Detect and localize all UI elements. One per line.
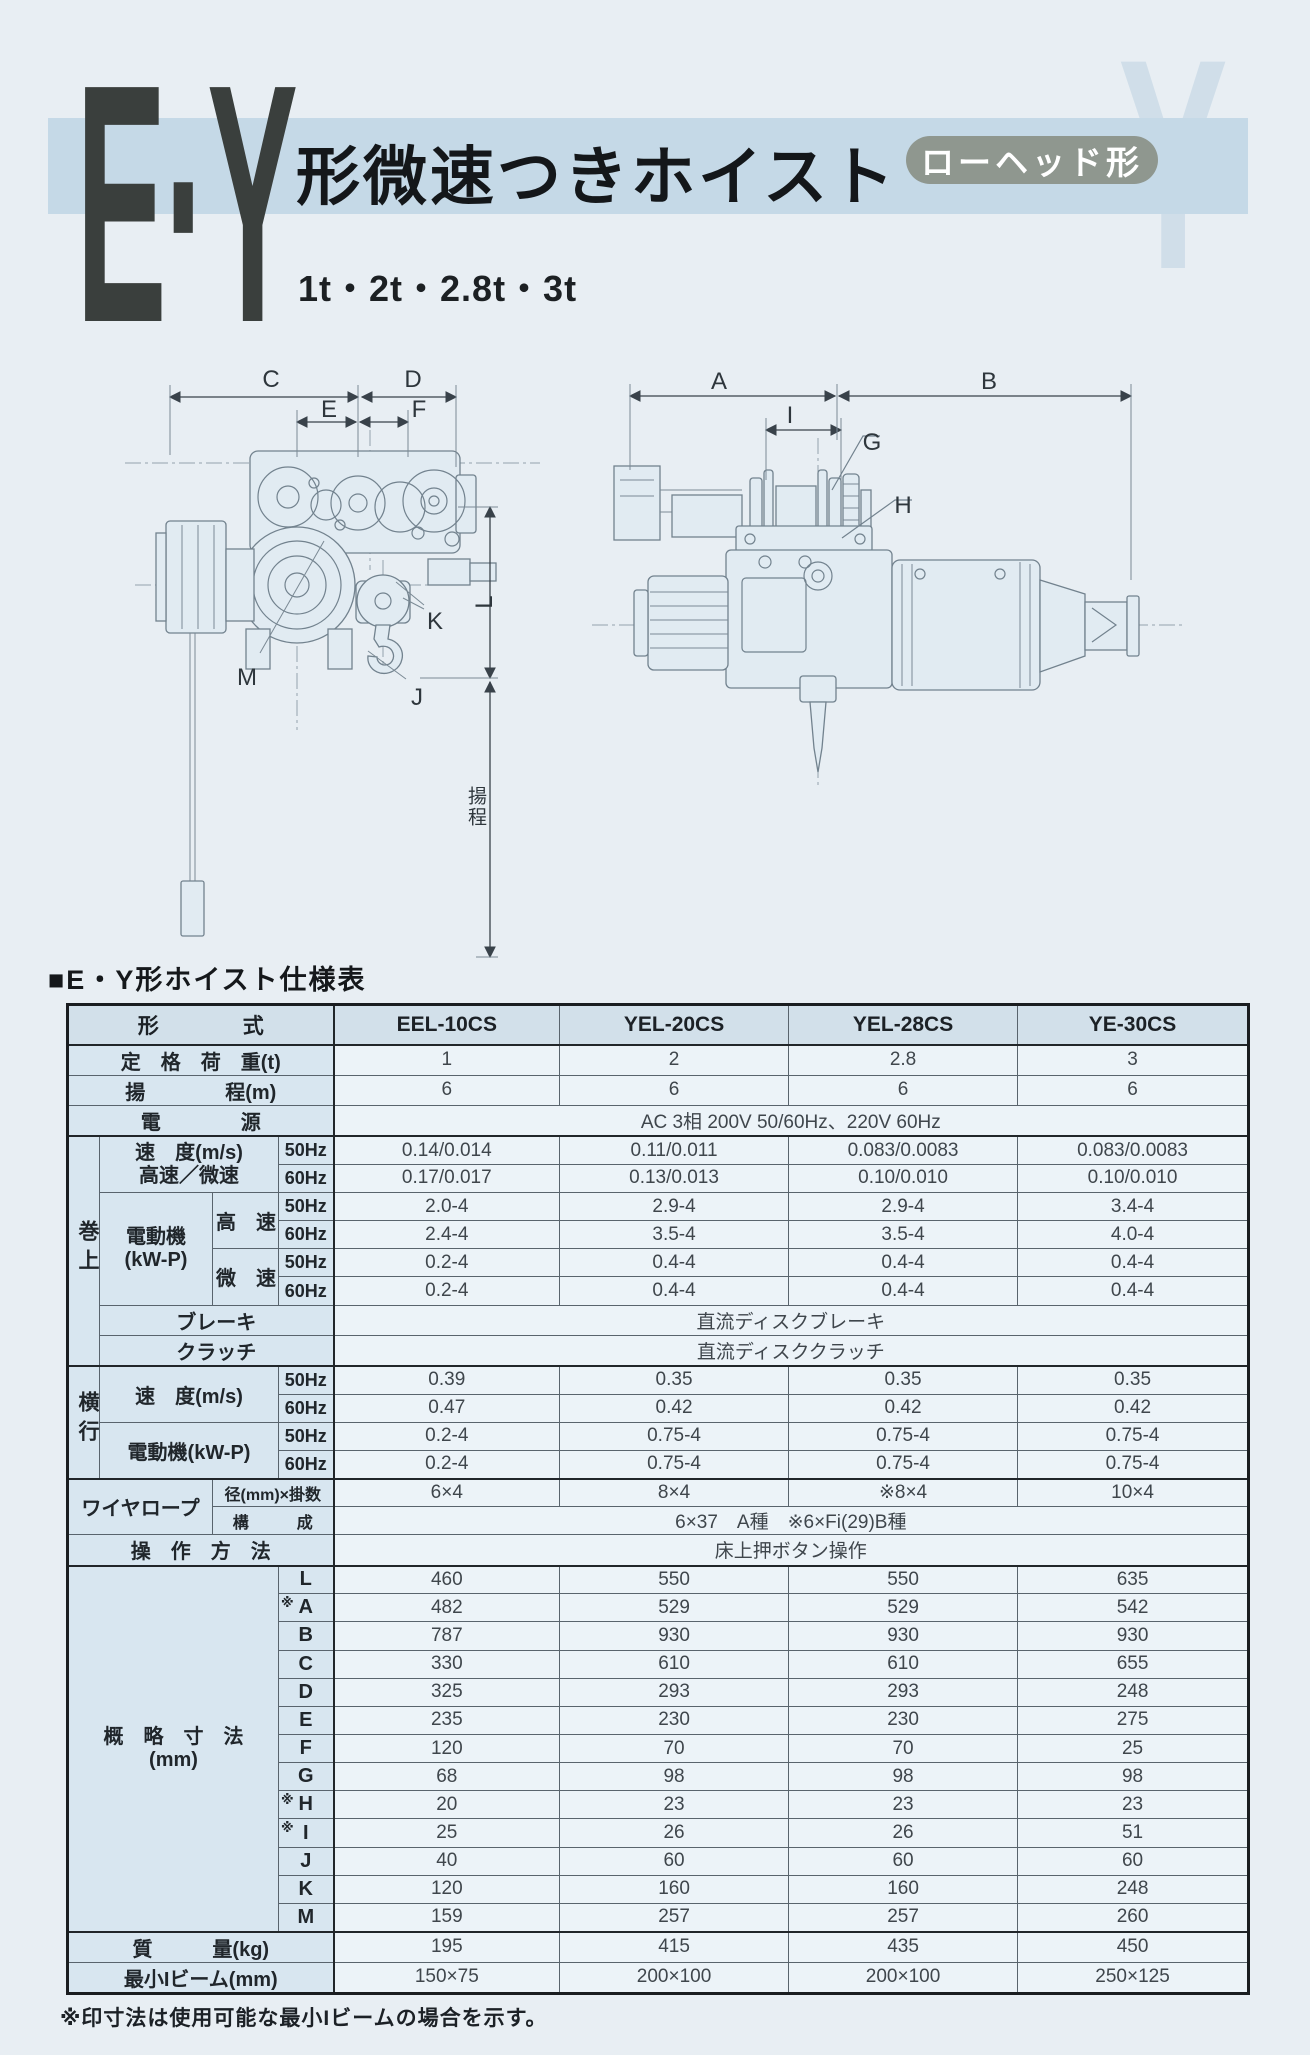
table-row: ブレーキ 直流ディスクブレーキ <box>68 1305 1249 1335</box>
hoist-motor-label: 電動機 (kW-P) <box>100 1193 213 1306</box>
hoist-side-view-drawing <box>100 335 560 970</box>
spec-value: 6 <box>334 1075 560 1105</box>
spec-value: 325 <box>334 1678 560 1706</box>
table-row: 質 量(kg) 195 415 435 450 <box>68 1932 1249 1963</box>
spec-value: 230 <box>560 1706 789 1734</box>
lift-height-label: 揚程 <box>462 786 489 828</box>
spec-value: 0.47 <box>334 1394 560 1422</box>
table-row: 横行 速 度(m/s) 50Hz 0.39 0.35 0.35 0.35 <box>68 1366 1249 1394</box>
dim-label-c: C <box>256 366 286 394</box>
table-row: 揚 程(m) 6 6 6 6 <box>68 1075 1249 1105</box>
spec-value: 120 <box>334 1734 560 1762</box>
spec-value: 2.9-4 <box>789 1193 1018 1221</box>
catalog-page: Y E·Y 形微速つきホイスト ローヘッド形 1t・2t・2.8t・3t <box>0 0 1310 2055</box>
spec-value: 930 <box>560 1622 789 1650</box>
spec-value: 0.4-4 <box>560 1277 789 1305</box>
spec-value: 195 <box>334 1932 560 1963</box>
spec-value: 0.75-4 <box>560 1450 789 1478</box>
spec-value: 2 <box>560 1045 789 1076</box>
table-row: 電動機 (kW-P) 高 速 50Hz 2.0-4 2.9-4 2.9-4 3.… <box>68 1193 1249 1221</box>
spec-value: 0.17/0.017 <box>334 1164 560 1192</box>
spec-value: 529 <box>560 1594 789 1622</box>
spec-value: 275 <box>1018 1706 1249 1734</box>
spec-value: 70 <box>560 1734 789 1762</box>
spec-value: 2.4-4 <box>334 1221 560 1249</box>
spec-value: 8×4 <box>560 1479 789 1507</box>
spec-value: 257 <box>560 1903 789 1931</box>
spec-value: 26 <box>789 1819 1018 1847</box>
table-row: 形 式 EEL-10CS YEL-20CS YEL-28CS YE-30CS <box>68 1005 1249 1045</box>
spec-value: 930 <box>1018 1622 1249 1650</box>
spec-value: 23 <box>560 1791 789 1819</box>
spec-value: 60 <box>789 1847 1018 1875</box>
spec-value: 610 <box>789 1650 1018 1678</box>
spec-value: 3.5-4 <box>789 1221 1018 1249</box>
spec-value: 0.42 <box>789 1394 1018 1422</box>
dim-label-d: D <box>398 366 428 394</box>
spec-value: 550 <box>789 1566 1018 1594</box>
dim-row-letter: F <box>279 1734 334 1762</box>
table-row: 操 作 方 法 床上押ボタン操作 <box>68 1535 1249 1566</box>
spec-value: 60 <box>560 1847 789 1875</box>
spec-value: 70 <box>789 1734 1018 1762</box>
spec-value: 0.75-4 <box>789 1422 1018 1450</box>
spec-value: 0.4-4 <box>1018 1249 1249 1277</box>
lift-label: 揚 程(m) <box>68 1075 334 1105</box>
spec-value: 0.35 <box>1018 1366 1249 1394</box>
spec-value: 3.4-4 <box>1018 1193 1249 1221</box>
table-row: ワイヤロープ 径(mm)×掛数 6×4 8×4 ※8×4 10×4 <box>68 1479 1249 1507</box>
mass-label: 質 量(kg) <box>68 1932 334 1963</box>
spec-value: 20 <box>334 1791 560 1819</box>
hz-label: 60Hz <box>279 1394 334 1422</box>
spec-value: 0.083/0.0083 <box>1018 1136 1249 1164</box>
spec-value: 235 <box>334 1706 560 1734</box>
spec-value: 2.8 <box>789 1045 1018 1076</box>
dim-label-f: F <box>404 396 434 424</box>
spec-value: 6×4 <box>334 1479 560 1507</box>
model-name: YEL-28CS <box>789 1005 1018 1045</box>
brake-label: ブレーキ <box>100 1305 334 1335</box>
spec-value: 25 <box>334 1819 560 1847</box>
spec-value: 159 <box>334 1903 560 1931</box>
min-beam-label: 最小Iビーム(mm) <box>68 1962 334 1993</box>
hoist-group-label: 巻上 <box>68 1136 100 1366</box>
fast-label: 高 速 <box>213 1193 279 1249</box>
dim-label-a: A <box>704 368 734 396</box>
spec-value: 0.42 <box>1018 1394 1249 1422</box>
spec-value: 6 <box>1018 1075 1249 1105</box>
spec-value: 6 <box>789 1075 1018 1105</box>
spec-value: 4.0-4 <box>1018 1221 1249 1249</box>
dim-row-letter: B <box>279 1622 334 1650</box>
spec-value: 200×100 <box>560 1962 789 1993</box>
spec-value: 0.4-4 <box>1018 1277 1249 1305</box>
spec-value: 0.39 <box>334 1366 560 1394</box>
spec-value: 0.2-4 <box>334 1422 560 1450</box>
hoist-speed-label: 速 度(m/s) 高速／微速 <box>100 1136 279 1192</box>
spec-value: 51 <box>1018 1819 1249 1847</box>
dim-row-letter: G <box>279 1763 334 1791</box>
spec-value: 25 <box>1018 1734 1249 1762</box>
dim-label-e: E <box>314 396 344 424</box>
lowhead-badge: ローヘッド形 <box>906 136 1158 184</box>
hoist-front-view-drawing <box>580 340 1200 800</box>
spec-value: 248 <box>1018 1875 1249 1903</box>
spec-value: 248 <box>1018 1678 1249 1706</box>
spec-value: 98 <box>1018 1763 1249 1791</box>
product-logo: E·Y <box>76 34 296 374</box>
hz-label: 50Hz <box>279 1366 334 1394</box>
spec-value: 0.14/0.014 <box>334 1136 560 1164</box>
spec-value: 529 <box>789 1594 1018 1622</box>
spec-value: 655 <box>1018 1650 1249 1678</box>
operation-label: 操 作 方 法 <box>68 1535 334 1566</box>
spec-value: 200×100 <box>789 1962 1018 1993</box>
dim-row-letter: ※H <box>279 1791 334 1819</box>
dim-row-letter: E <box>279 1706 334 1734</box>
spec-value: 250×125 <box>1018 1962 1249 1993</box>
clutch-label: クラッチ <box>100 1335 334 1366</box>
spec-value: 0.35 <box>789 1366 1018 1394</box>
spec-value: 293 <box>560 1678 789 1706</box>
table-row: 微 速 50Hz 0.2-4 0.4-4 0.4-4 0.4-4 <box>68 1249 1249 1277</box>
spec-value: 610 <box>560 1650 789 1678</box>
spec-value: 23 <box>789 1791 1018 1819</box>
traverse-group-label: 横行 <box>68 1366 100 1479</box>
table-row: 構 成 6×37 A種 ※6×Fi(29)B種 <box>68 1507 1249 1535</box>
spec-value: 2.9-4 <box>560 1193 789 1221</box>
spec-value: 787 <box>334 1622 560 1650</box>
model-name: YEL-20CS <box>560 1005 789 1045</box>
model-name: YE-30CS <box>1018 1005 1249 1045</box>
spec-value: 0.083/0.0083 <box>789 1136 1018 1164</box>
hz-label: 50Hz <box>279 1136 334 1164</box>
dim-label-m: M <box>232 664 262 692</box>
spec-table-title: ■E・Y形ホイスト仕様表 <box>48 958 367 997</box>
spec-value: 68 <box>334 1763 560 1791</box>
spec-value: 0.4-4 <box>560 1249 789 1277</box>
model-name: EEL-10CS <box>334 1005 560 1045</box>
dim-row-letter: M <box>279 1903 334 1931</box>
dim-label-k: K <box>420 608 450 636</box>
hz-label: 60Hz <box>279 1164 334 1192</box>
dim-row-letter: J <box>279 1847 334 1875</box>
spec-value: 542 <box>1018 1594 1249 1622</box>
spec-table: 形 式 EEL-10CS YEL-20CS YEL-28CS YE-30CS 定… <box>66 1003 1250 1995</box>
spec-value: 930 <box>789 1622 1018 1650</box>
dim-label-l: L <box>471 587 499 617</box>
spec-value: 98 <box>560 1763 789 1791</box>
spec-value: 40 <box>334 1847 560 1875</box>
spec-value: 160 <box>560 1875 789 1903</box>
slow-label: 微 速 <box>213 1249 279 1305</box>
dim-label-j: J <box>402 684 432 712</box>
dim-row-letter: D <box>279 1678 334 1706</box>
spec-value: 0.42 <box>560 1394 789 1422</box>
spec-value: 0.75-4 <box>1018 1450 1249 1478</box>
spec-value: 450 <box>1018 1932 1249 1963</box>
spec-value: 0.75-4 <box>789 1450 1018 1478</box>
dim-label-i: I <box>775 402 805 430</box>
hz-label: 50Hz <box>279 1422 334 1450</box>
table-row: 最小Iビーム(mm) 150×75 200×100 200×100 250×12… <box>68 1962 1249 1993</box>
spec-value: 3 <box>1018 1045 1249 1076</box>
hz-label: 60Hz <box>279 1221 334 1249</box>
dim-label-b: B <box>974 368 1004 396</box>
spec-value: 0.11/0.011 <box>560 1136 789 1164</box>
dim-row-letter: ※I <box>279 1819 334 1847</box>
spec-value: 415 <box>560 1932 789 1963</box>
spec-value: 460 <box>334 1566 560 1594</box>
dim-label-g: G <box>857 429 887 457</box>
hz-label: 50Hz <box>279 1249 334 1277</box>
dim-row-letter: ※A <box>279 1594 334 1622</box>
footnote: ※印寸法は使用可能な最小Iビームの場合を示す。 <box>60 2002 548 2032</box>
spec-value: 435 <box>789 1932 1018 1963</box>
clutch-value: 直流ディスククラッチ <box>334 1335 1249 1366</box>
dim-label-h: H <box>888 492 918 520</box>
model-header-label: 形 式 <box>68 1005 334 1045</box>
operation-value: 床上押ボタン操作 <box>334 1535 1249 1566</box>
spec-value: 98 <box>789 1763 1018 1791</box>
table-row: 概 略 寸 法 (mm) L 460 550 550 635 <box>68 1566 1249 1594</box>
page-title: 形微速つきホイスト <box>296 126 897 218</box>
spec-value: 26 <box>560 1819 789 1847</box>
spec-value: 257 <box>789 1903 1018 1931</box>
spec-value: 0.2-4 <box>334 1249 560 1277</box>
traverse-speed-label: 速 度(m/s) <box>100 1366 279 1422</box>
table-row: 巻上 速 度(m/s) 高速／微速 50Hz 0.14/0.014 0.11/0… <box>68 1136 1249 1164</box>
spec-value: 0.10/0.010 <box>789 1164 1018 1192</box>
spec-value: 0.10/0.010 <box>1018 1164 1249 1192</box>
dim-row-letter: K <box>279 1875 334 1903</box>
power-value: AC 3相 200V 50/60Hz、220V 60Hz <box>334 1106 1249 1137</box>
table-row: 定 格 荷 重(t) 1 2 2.8 3 <box>68 1045 1249 1076</box>
rope-const-value: 6×37 A種 ※6×Fi(29)B種 <box>334 1507 1249 1535</box>
spec-value: 230 <box>789 1706 1018 1734</box>
table-row: 電 源 AC 3相 200V 50/60Hz、220V 60Hz <box>68 1106 1249 1137</box>
spec-value: 160 <box>789 1875 1018 1903</box>
spec-value: 550 <box>560 1566 789 1594</box>
spec-value: 10×4 <box>1018 1479 1249 1507</box>
spec-value: 60 <box>1018 1847 1249 1875</box>
spec-value: 0.35 <box>560 1366 789 1394</box>
spec-value: 635 <box>1018 1566 1249 1594</box>
spec-value: 2.0-4 <box>334 1193 560 1221</box>
spec-value: 293 <box>789 1678 1018 1706</box>
table-row: 電動機(kW-P) 50Hz 0.2-4 0.75-4 0.75-4 0.75-… <box>68 1422 1249 1450</box>
table-row: クラッチ 直流ディスククラッチ <box>68 1335 1249 1366</box>
brake-value: 直流ディスクブレーキ <box>334 1305 1249 1335</box>
spec-value: 0.4-4 <box>789 1249 1018 1277</box>
spec-value: 23 <box>1018 1791 1249 1819</box>
hz-label: 50Hz <box>279 1193 334 1221</box>
spec-value: 0.75-4 <box>1018 1422 1249 1450</box>
spec-value: 0.13/0.013 <box>560 1164 789 1192</box>
spec-value: 1 <box>334 1045 560 1076</box>
dim-row-letter: L <box>279 1566 334 1594</box>
rope-dia-label: 径(mm)×掛数 <box>213 1479 334 1507</box>
spec-value: 482 <box>334 1594 560 1622</box>
spec-value: 0.2-4 <box>334 1277 560 1305</box>
spec-value: 3.5-4 <box>560 1221 789 1249</box>
spec-value: 0.75-4 <box>560 1422 789 1450</box>
traverse-motor-label: 電動機(kW-P) <box>100 1422 279 1478</box>
spec-value: 260 <box>1018 1903 1249 1931</box>
spec-value: 0.2-4 <box>334 1450 560 1478</box>
capacity-list: 1t・2t・2.8t・3t <box>298 260 577 312</box>
dims-label: 概 略 寸 法 (mm) <box>68 1566 279 1932</box>
spec-value: 6 <box>560 1075 789 1105</box>
spec-value: ※8×4 <box>789 1479 1018 1507</box>
rope-const-label: 構 成 <box>213 1507 334 1535</box>
spec-value: 330 <box>334 1650 560 1678</box>
hz-label: 60Hz <box>279 1450 334 1478</box>
rope-label: ワイヤロープ <box>68 1479 213 1535</box>
spec-value: 150×75 <box>334 1962 560 1993</box>
hz-label: 60Hz <box>279 1277 334 1305</box>
capacity-label: 定 格 荷 重(t) <box>68 1045 334 1076</box>
spec-value: 120 <box>334 1875 560 1903</box>
spec-value: 0.4-4 <box>789 1277 1018 1305</box>
dim-row-letter: C <box>279 1650 334 1678</box>
power-label: 電 源 <box>68 1106 334 1137</box>
